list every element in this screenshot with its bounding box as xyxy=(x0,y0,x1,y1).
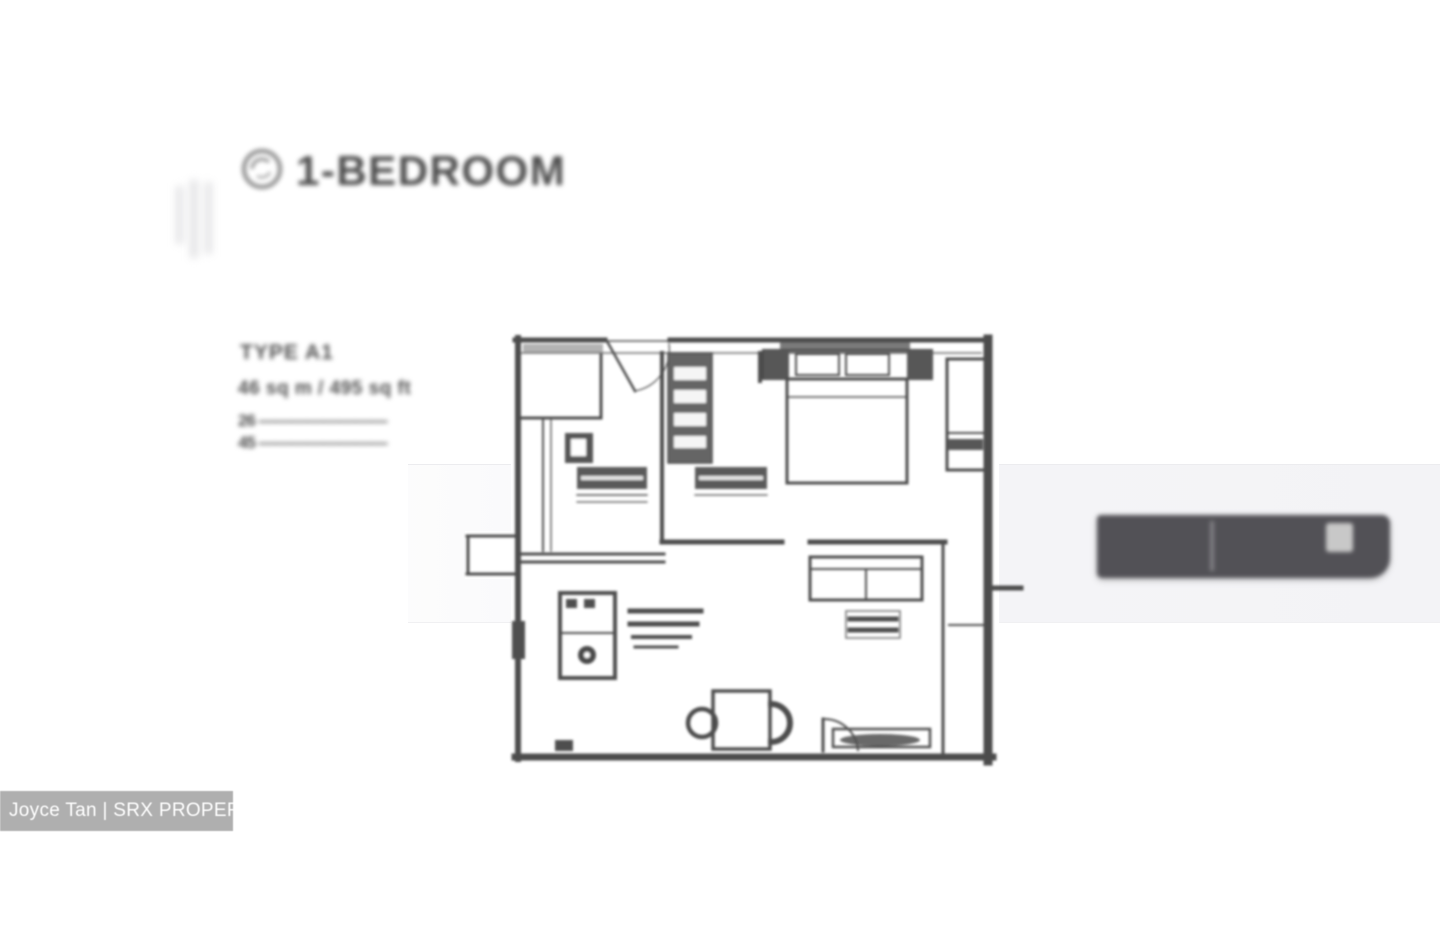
blurred-banner-button[interactable] xyxy=(1097,515,1390,578)
watermark-text: Joyce Tan | SRX PROPERTY xyxy=(0,800,265,822)
unit-info-block: TYPE A1 46 sq m / 495 sq ft 26 ———————— … xyxy=(238,341,411,453)
watermark: Joyce Tan | SRX PROPERTY xyxy=(0,791,233,831)
unit-area-label: 46 sq m / 495 sq ft xyxy=(238,378,411,400)
plan-background xyxy=(511,333,999,766)
scan-artifact-marks xyxy=(174,178,222,263)
page-title: 1-BEDROOM xyxy=(296,147,566,195)
banner-highlight-square xyxy=(1326,523,1353,552)
circular-logo-icon xyxy=(234,142,290,198)
unit-detail-line-2: 45 ———————— xyxy=(238,433,411,453)
wardrobe xyxy=(668,353,712,463)
floor-plan xyxy=(465,333,1023,768)
unit-detail-line-1: 26 ———————— xyxy=(238,411,411,431)
plan-background-ledge xyxy=(465,531,521,579)
banner-divider xyxy=(1210,521,1214,571)
unit-type-label: TYPE A1 xyxy=(240,341,411,365)
